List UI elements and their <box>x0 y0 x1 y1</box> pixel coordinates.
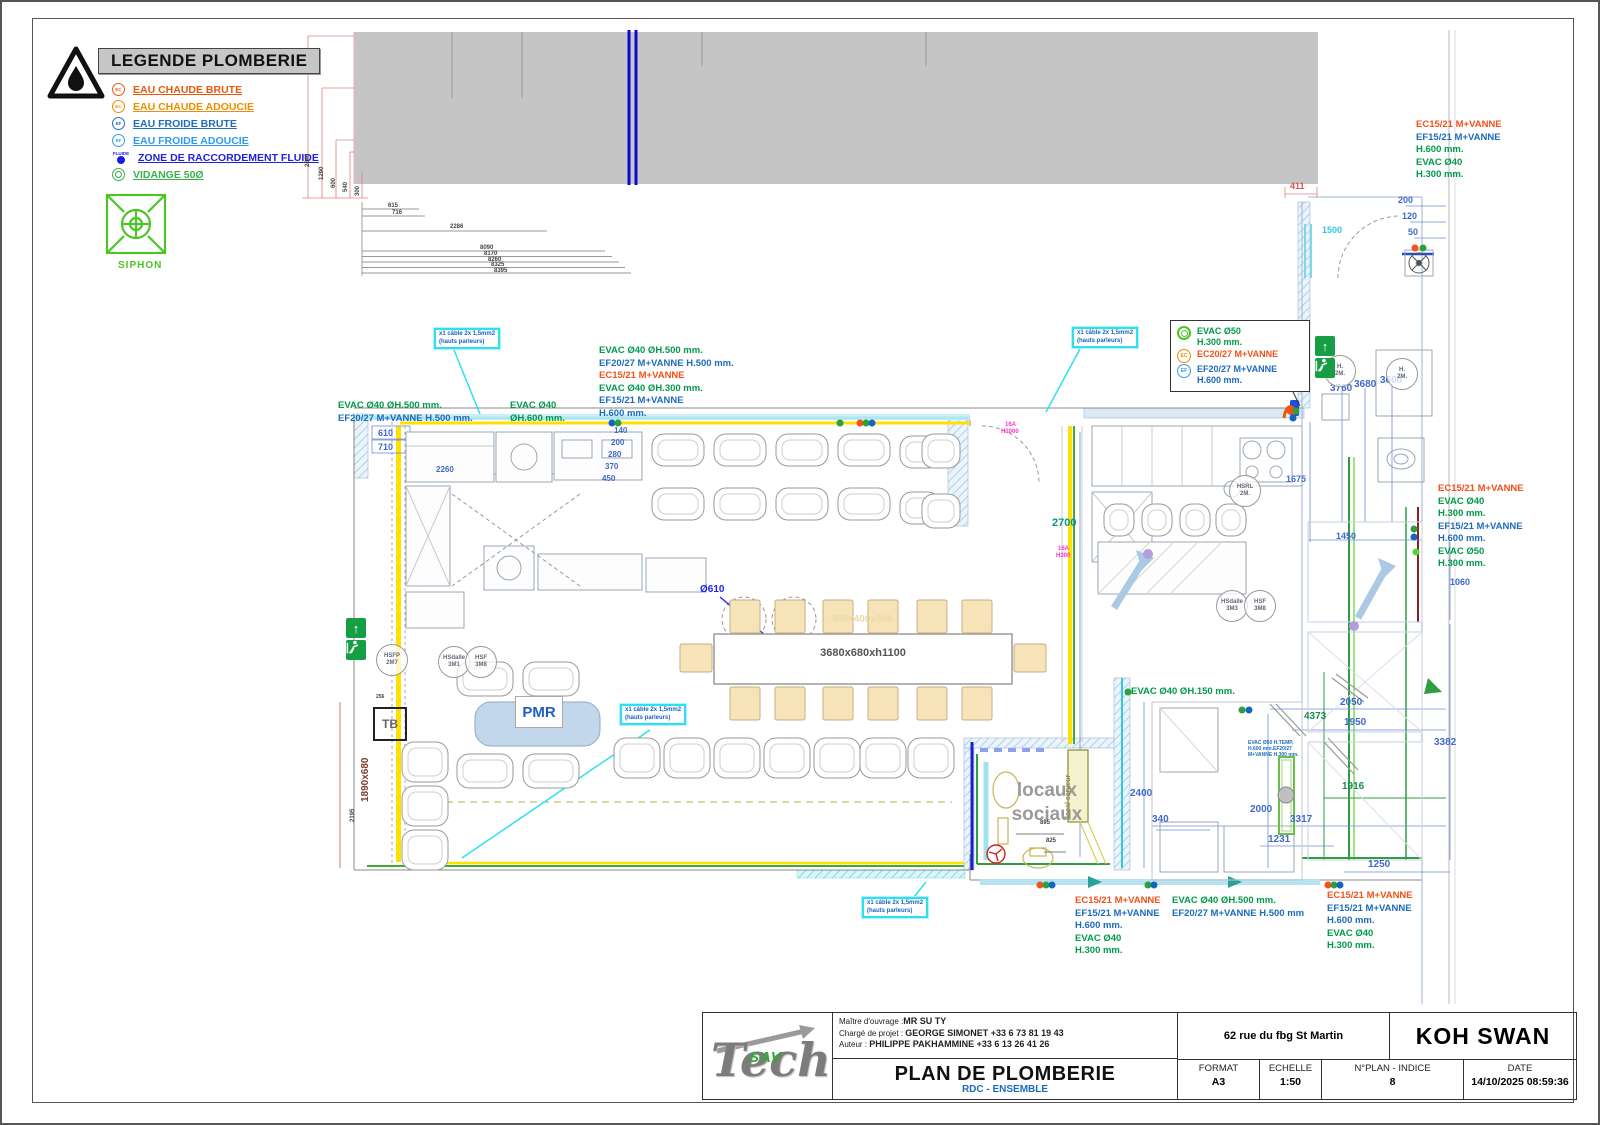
dimension-label: 200 <box>1398 195 1413 205</box>
pipe-connection-dot <box>1411 534 1418 541</box>
dimension-label: 3382 <box>1434 737 1456 748</box>
dimension-label: 1500 <box>1322 225 1342 235</box>
stool-size-label: 400x400x800 <box>802 614 922 625</box>
ef-icon: EF <box>1177 364 1191 378</box>
dimension-label: 3317 <box>1290 814 1312 825</box>
pipe-connection-dot <box>1349 621 1359 631</box>
manager-label: Chargé de projet : <box>839 1029 903 1038</box>
dimension-label: 2400 <box>1130 788 1152 799</box>
dimension-label: 280 <box>608 450 621 459</box>
dimension-label: 1231 <box>1268 834 1290 845</box>
site-address: 62 rue du fbg St Martin <box>1178 1013 1390 1059</box>
pipe-annotation: EC15/21 M+VANNEEF15/21 M+VANNEH.600 mm.E… <box>1075 895 1161 958</box>
legend-item-label: EAU FROIDE BRUTE <box>133 118 237 130</box>
manager-value: GEORGE SIMONET +33 6 73 81 19 43 <box>905 1028 1063 1038</box>
cable-note: x1 câble 2x 1,5mm2(hauts parleurs) <box>620 704 686 725</box>
dimension-label: 716 <box>392 210 402 216</box>
dimension-label: 16A <box>1058 546 1069 552</box>
dimension-label: 120 <box>1402 211 1417 221</box>
exit-sign-icon: ↑ <box>1315 336 1335 356</box>
tb-box: TB <box>373 707 407 741</box>
pipe-connection-dot <box>1246 707 1253 714</box>
dimension-label: 340 <box>1152 814 1169 825</box>
pipe-connection-dot <box>1049 882 1056 889</box>
dimension-label: 1675 <box>1286 474 1306 484</box>
pipe-connection-dot <box>1143 549 1153 559</box>
project-name: KOH SWAN <box>1390 1013 1576 1059</box>
pipe-annotation: EC15/21 M+VANNEEF15/21 M+VANNEH.600 mm.E… <box>1327 890 1413 953</box>
pipe-connection-dot <box>837 420 844 427</box>
dimension-label: 1450 <box>1336 531 1356 541</box>
dimension-label: 1290 <box>319 167 325 180</box>
pipe-annotation: EVAC Ø40ØH.600 mm. <box>510 400 565 425</box>
pipe-connection-dot <box>869 420 876 427</box>
siphon-icon <box>104 192 168 256</box>
dimension-label: 2700 <box>1052 517 1076 529</box>
drawing-title: PLAN DE PLOMBERIE <box>895 1063 1116 1086</box>
dimension-label: 615 <box>388 203 398 209</box>
long-table-label: 3680x680xh1100 <box>720 647 1006 659</box>
dimension-label: 2260 <box>436 465 454 474</box>
dimension-label: 450 <box>602 474 615 483</box>
dimension-label: 300 <box>355 186 361 196</box>
vidange-icon <box>112 168 125 181</box>
dimension-label: 710 <box>378 442 393 452</box>
pipe-connection-dot <box>1125 689 1132 696</box>
legend-item: EFEAU FROIDE ADOUCIE <box>112 132 319 149</box>
boxed-pipe-callout: EVAC Ø50H.300 mm.ECEC20/27 M+VANNEEFEF20… <box>1170 320 1310 392</box>
legend-item-label: EAU FROIDE ADOUCIE <box>133 135 249 147</box>
dimension-label: 2000 <box>1250 804 1272 815</box>
dimension-label: 895 <box>1040 820 1050 826</box>
dimension-label: 50 <box>1408 227 1418 237</box>
pmr-table-label: PMR <box>515 696 563 728</box>
legend-items: ECEAU CHAUDE BRUTEECEAU CHAUDE ADOUCIEEF… <box>112 81 319 183</box>
author-label: Auteur : <box>839 1040 867 1049</box>
dimension-label: 8395 <box>494 268 507 274</box>
legend-item-label: VIDANGE 50Ø <box>133 169 204 181</box>
dimension-label: 540 <box>343 182 349 192</box>
dimension-label: 411 <box>1290 181 1305 191</box>
legend-item-label: EAU CHAUDE ADOUCIE <box>133 101 254 113</box>
boxed-callout-text: EC20/27 M+VANNE <box>1197 349 1278 360</box>
dimension-label: 2286 <box>450 224 463 230</box>
dimension-label: H300 <box>1056 553 1070 559</box>
pipe-annotation: EVAC Ø40 ØH.150 mm. <box>1131 686 1235 699</box>
dimension-label: 1250 <box>1368 859 1390 870</box>
date-cell: DATE14/10/2025 08:59:36 <box>1464 1060 1576 1099</box>
legend-item: ECEAU CHAUDE ADOUCIE <box>112 98 319 115</box>
dimension-label: 1060 <box>1450 577 1470 587</box>
legend-item-label: EAU CHAUDE BRUTE <box>133 84 242 96</box>
pipe-connection-dot <box>1337 882 1344 889</box>
pipe-connection-dot <box>1293 408 1300 415</box>
dimension-label: 610 <box>378 428 393 438</box>
dimension-label: 2195 <box>350 809 356 822</box>
drawing-subtitle: RDC - ENSEMBLE <box>962 1084 1048 1095</box>
dimension-label: Ø610 <box>700 584 724 595</box>
dimension-label: 4373 <box>1304 711 1326 722</box>
format-cell: FORMATA3 <box>1178 1060 1260 1099</box>
company-logo: Tech SAV <box>703 1013 833 1099</box>
pipe-connection-dot <box>1420 245 1427 252</box>
ec-icon: EC <box>112 83 125 96</box>
boxed-callout-row: EVAC Ø50H.300 mm. <box>1177 326 1303 348</box>
height-marker: H.2M. <box>1386 358 1418 390</box>
boxed-callout-text: EF20/27 M+VANNEH.600 mm. <box>1197 364 1277 386</box>
ec-icon: EC <box>1177 349 1191 363</box>
logo-sub-text: SAV <box>749 1049 782 1066</box>
title-block: Tech SAV Maître d'ouvrage :MR SU TY Char… <box>702 1012 1577 1100</box>
local-serveur-label: local serveur <box>1065 775 1072 818</box>
fluide-icon: FLUIDE <box>112 151 130 164</box>
cable-note: x1 câble 2x 1,5mm2(hauts parleurs) <box>862 897 928 918</box>
owner-value: MR SU TY <box>903 1016 946 1026</box>
pipe-connection-dot <box>1239 707 1246 714</box>
dimension-label: H1000 <box>1001 429 1019 435</box>
legend-title: LEGENDE PLOMBERIE <box>98 48 320 74</box>
height-marker: HSFP2M7 <box>376 644 408 676</box>
dimension-label: 140 <box>614 426 627 435</box>
scale-cell: ECHELLE1:50 <box>1260 1060 1322 1099</box>
pipe-annotation: EVAC Ø40 ØH.500 mm.EF20/27 M+VANNE H.500… <box>1172 895 1304 920</box>
extractor-fan-icon <box>987 845 1005 863</box>
ec-icon: EC <box>112 100 125 113</box>
pipe-annotation: EVAC Ø50 H.TEMP,H.600 mm.EF20/27M+VANNE … <box>1248 740 1299 758</box>
exit-sign-icon <box>1315 358 1335 378</box>
pipe-connection-dot <box>615 420 622 427</box>
ef-icon: EF <box>112 134 125 147</box>
pipe-connection-dot <box>1151 882 1158 889</box>
dimension-label: 600 <box>331 178 337 188</box>
dimension-label: 2040 <box>305 154 311 167</box>
pipe-connection-dot <box>1411 526 1418 533</box>
height-marker: HSF3M8 <box>465 646 497 678</box>
height-marker: HSF3M8 <box>1244 590 1276 622</box>
exit-sign-icon: ↑ <box>346 618 366 638</box>
pipe-annotation: EC15/21 M+VANNEEVAC Ø40H.300 mm.EF15/21 … <box>1438 483 1524 571</box>
dimension-label: 1950 <box>1344 717 1366 728</box>
vidange-icon <box>1177 326 1191 340</box>
cable-note: x1 câble 2x 1,5mm2(hauts parleurs) <box>1072 327 1138 348</box>
height-marker: HSRL2M. <box>1229 475 1261 507</box>
boxed-callout-text: EVAC Ø50H.300 mm. <box>1197 326 1242 348</box>
warning-triangle-icon <box>46 44 106 102</box>
siphon-label: SIPHON <box>118 260 162 271</box>
long-table <box>714 634 1012 684</box>
pipe-annotation: EVAC Ø40 ØH.500 mm.EF20/27 M+VANNE H.500… <box>338 400 473 425</box>
dimension-label: 16A <box>1005 422 1016 428</box>
plan-index-cell: N°PLAN - INDICE8 <box>1322 1060 1464 1099</box>
dimension-label: 370 <box>605 462 618 471</box>
building-mass <box>354 30 1318 185</box>
legend-item-label: ZONE DE RACCORDEMENT FLUIDE <box>138 152 319 164</box>
pipe-connection-dot <box>1413 549 1420 556</box>
dimension-label: 2050 <box>1340 697 1362 708</box>
legend-item: FLUIDEZONE DE RACCORDEMENT FLUIDE <box>112 149 319 166</box>
cable-note: x1 câble 2x 1,5mm2(hauts parleurs) <box>434 328 500 349</box>
legend-item: ECEAU CHAUDE BRUTE <box>112 81 319 98</box>
pipe-connection-dot <box>1412 245 1419 252</box>
legend-item: VIDANGE 50Ø <box>112 166 319 183</box>
boxed-callout-row: ECEC20/27 M+VANNE <box>1177 349 1303 363</box>
author-value: PHILIPPE PAKHAMMINE +33 6 13 26 41 26 <box>869 1039 1049 1049</box>
project-info: Maître d'ouvrage :MR SU TY Chargé de pro… <box>833 1013 1177 1059</box>
drawing-sheet: LEGENDE PLOMBERIE ECEAU CHAUDE BRUTEECEA… <box>0 0 1600 1125</box>
pipe-annotation: EC15/21 M+VANNEEF15/21 M+VANNEH.600 mm.E… <box>1416 119 1502 182</box>
owner-label: Maître d'ouvrage : <box>839 1017 903 1026</box>
pipe-connection-dot <box>1290 415 1297 422</box>
dimension-label: 1916 <box>1342 781 1364 792</box>
ef-icon: EF <box>112 117 125 130</box>
exit-sign-icon <box>346 640 366 660</box>
pipe-annotation: EVAC Ø40 ØH.500 mm.EF20/27 M+VANNE H.500… <box>599 345 734 420</box>
boxed-callout-row: EFEF20/27 M+VANNEH.600 mm. <box>1177 364 1303 386</box>
dimension-label: 200 <box>611 438 624 447</box>
dimension-label: 1890x680 <box>360 758 371 803</box>
dimension-label: 256 <box>376 694 384 700</box>
dimension-label: 3680 <box>1354 379 1376 390</box>
legend-item: EFEAU FROIDE BRUTE <box>112 115 319 132</box>
dimension-label: 825 <box>1046 838 1056 844</box>
